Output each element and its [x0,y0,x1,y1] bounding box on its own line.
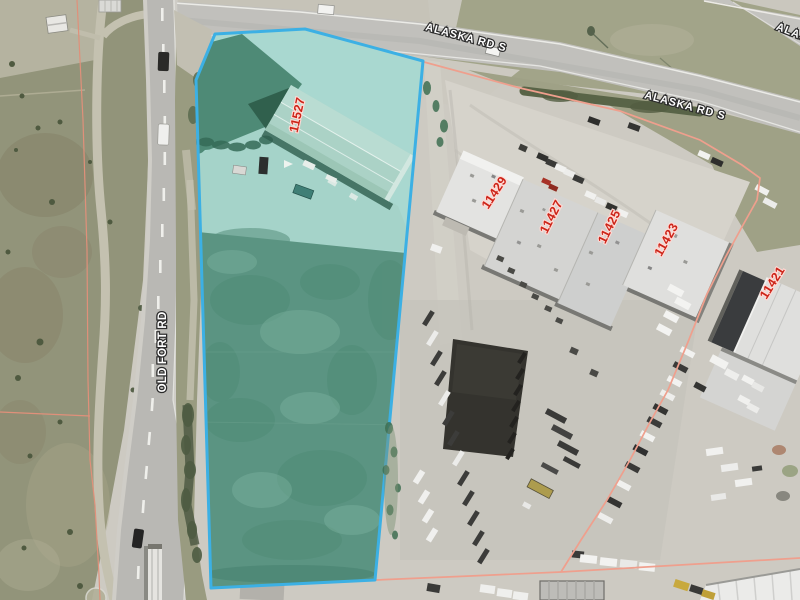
svg-text:OLD FORT RD: OLD FORT RD [157,312,169,393]
